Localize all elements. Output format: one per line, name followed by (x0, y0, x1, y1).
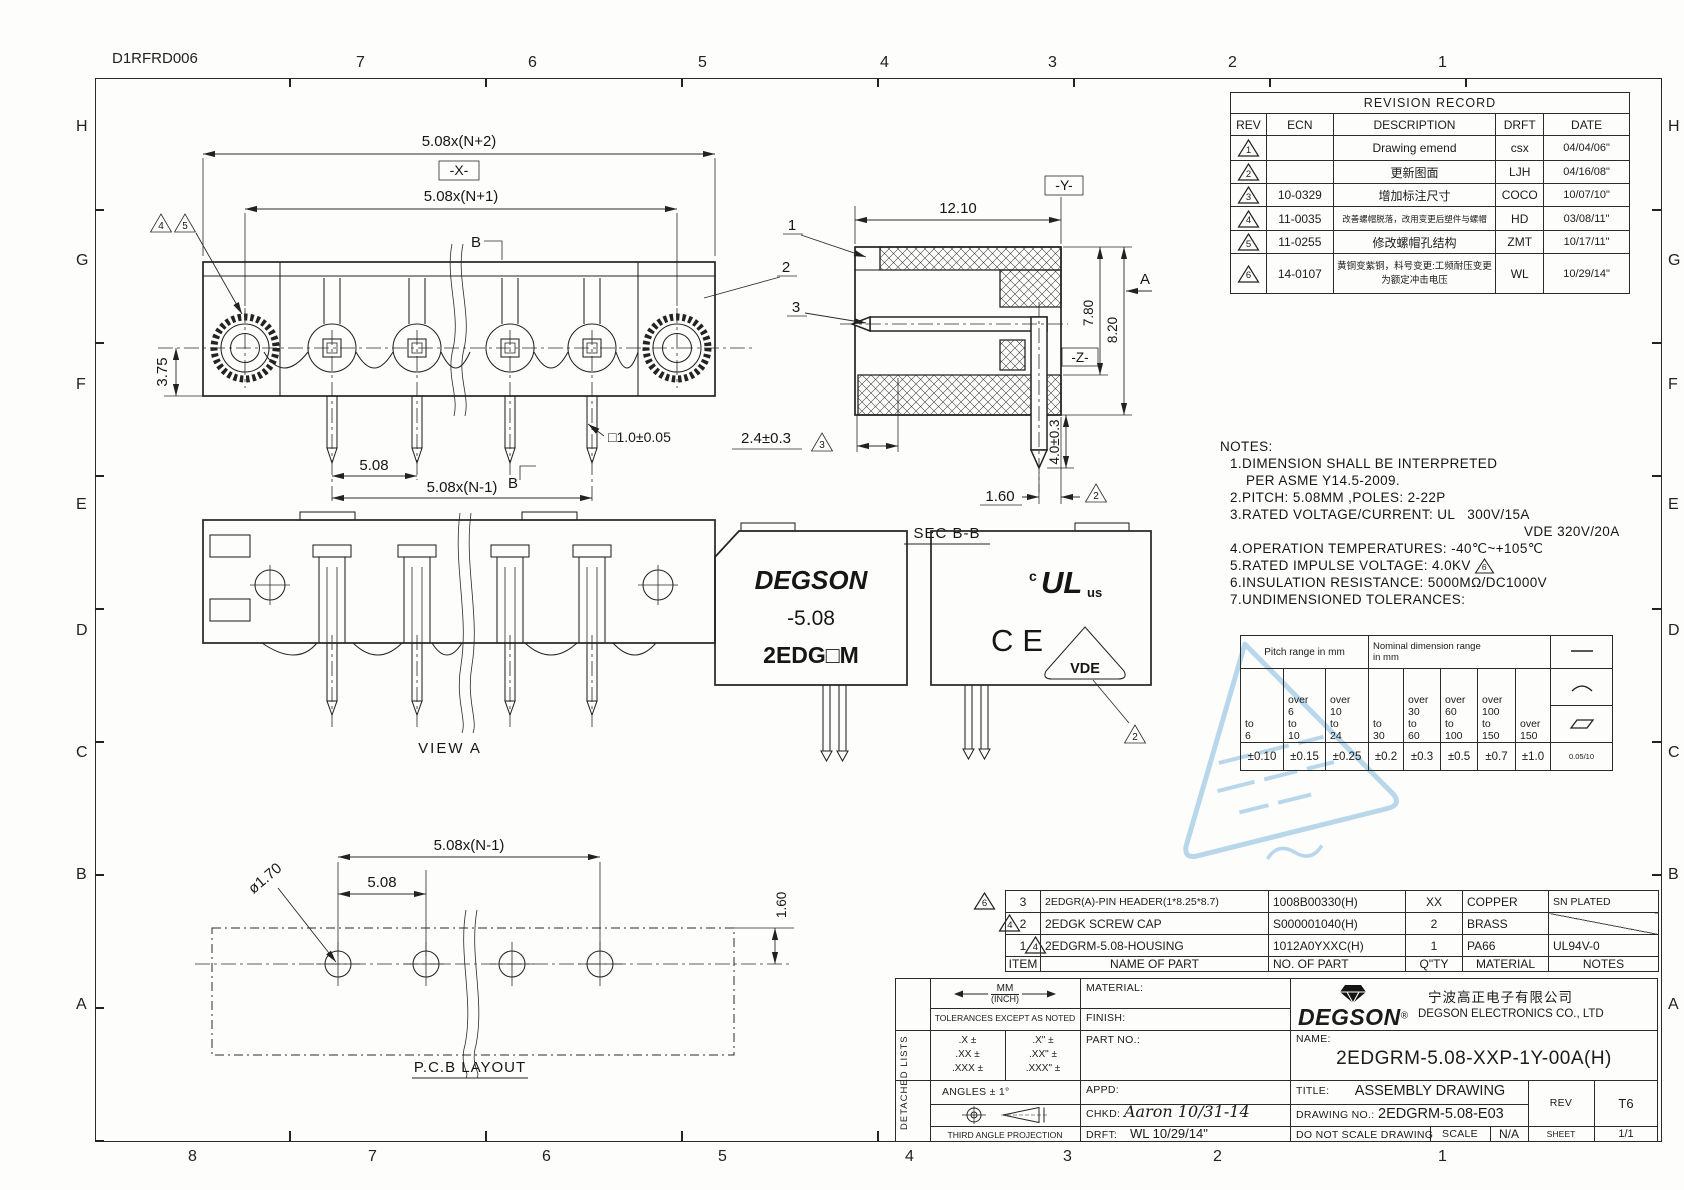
board-outline (212, 928, 734, 1055)
rev-label: REV (1528, 1080, 1594, 1126)
pitch-marking: -5.08 (787, 607, 835, 630)
range-cell: over 150 (1516, 669, 1551, 743)
cul-us-logo: c UL us (1029, 565, 1102, 600)
drft-label: DRFT: (1086, 1129, 1117, 1141)
note-line: PER ASME Y14.5-2009. (1246, 472, 1620, 489)
units-indicator: MM (INCH) (932, 982, 1078, 1006)
dim-height: 3.75 (154, 357, 171, 386)
col-description: DESCRIPTION (1333, 114, 1496, 136)
dim-overall: 5.08x(N+2) (422, 133, 497, 150)
tol-value: ±1.0 (1516, 743, 1551, 771)
drawing-no-value: 2EDGRM-5.08-E03 (1378, 1106, 1504, 1122)
svg-text:UL: UL (1041, 565, 1082, 600)
projection-cone-icon (1001, 1106, 1049, 1124)
dim-span: 5.08x(N-1) (434, 837, 505, 854)
revision-row: 2 更新图面 LJH04/16/08" (1231, 161, 1630, 184)
bom-row: 2 2EDGK SCREW CAP S000001040(H) 2 BRASS (1006, 913, 1659, 935)
drawing-no-label: DRAWING NO.: (1296, 1109, 1374, 1121)
range-cell: over 100 to 150 (1478, 669, 1516, 743)
scale-label: SCALE (1430, 1126, 1490, 1142)
break-line (474, 910, 479, 1078)
arrow-left-icon (952, 989, 988, 999)
range-cell: to 30 (1369, 669, 1404, 743)
col-drft: DRFT (1496, 114, 1544, 136)
brand-marking: DEGSON (755, 565, 869, 595)
pcb-label: P.C.B LAYOUT (414, 1059, 526, 1076)
revision-row: 1 Drawing emend csx04/04/06" (1231, 136, 1630, 161)
grid-col: 6 (542, 1148, 551, 1166)
grid-row: G (1668, 252, 1680, 270)
straightness-icon (1569, 646, 1595, 656)
grid-row: H (1668, 118, 1680, 136)
datum-z: -Z- (1071, 350, 1088, 365)
drawing-title: ASSEMBLY DRAWING (1340, 1083, 1520, 1099)
dim-h1: 7.80 (1081, 300, 1096, 326)
range-cell: to 6 (1241, 669, 1284, 743)
balloon-1: 1 (783, 217, 866, 257)
grid-col: 5 (718, 1148, 727, 1166)
name-label: NAME: (1296, 1033, 1331, 1045)
tol-value: ±0.5 (1441, 743, 1478, 771)
form-symbols-cell (1551, 669, 1613, 743)
svg-text:VDE: VDE (1070, 661, 1100, 677)
units-inch: (INCH) (991, 995, 1020, 1004)
svg-text:4: 4 (158, 221, 164, 232)
arc-icon (1569, 681, 1595, 693)
notes-block: NOTES: 1.DIMENSION SHALL BE INTERPRETED … (1220, 438, 1620, 608)
dim-pitch: 5.08 (359, 457, 388, 474)
svg-text:2: 2 (782, 259, 790, 276)
grid-col: 8 (188, 1148, 197, 1166)
grid-row: D (76, 622, 88, 640)
company-name-en: DEGSON ELECTRONICS CO., LTD (1418, 1008, 1604, 1020)
sheet-value: 1/1 (1594, 1126, 1658, 1142)
svg-text:1: 1 (788, 217, 796, 234)
grid-col: 3 (1063, 1148, 1072, 1166)
bom-rev-flag: 6 (974, 892, 995, 910)
rev-flag: 3 (1238, 186, 1259, 204)
dim-pin-length: 4.0±0.3 (1047, 420, 1062, 465)
grid-row: H (76, 118, 88, 136)
projection-label: THIRD ANGLE PROJECTION (930, 1130, 1080, 1140)
dim-span: 5.08x(N-1) (427, 479, 498, 496)
tol-value: ±0.10 (1241, 743, 1284, 771)
tol-value: ±0.25 (1326, 743, 1369, 771)
pcb-layout-view: 5.08x(N-1) 5.08 ø1.70 1.60 P.C.B LAYOUT (150, 770, 810, 1082)
grid-row: A (76, 996, 87, 1014)
col-ecn: ECN (1266, 114, 1333, 136)
break-line (461, 244, 466, 416)
material-label: MATERIAL: (1086, 982, 1143, 994)
grid-row: B (1668, 866, 1679, 884)
certification-view: c UL us CE VDE 2 (925, 515, 1160, 763)
zone-ticks-left (95, 78, 104, 1142)
grid-row: F (76, 376, 86, 394)
title-label: TITLE: (1296, 1085, 1329, 1097)
vde-logo: VDE (1045, 627, 1125, 679)
rev-flag: 4 (1238, 210, 1259, 228)
grid-row: F (1668, 376, 1678, 394)
chkd-signature: Aaron 10/31-14 (1124, 1102, 1250, 1121)
dim-front: 2.4±0.3 (741, 430, 791, 447)
rev-flag-2: 2 (1132, 732, 1138, 743)
range-cell: over 60 to 100 (1441, 669, 1478, 743)
tol-value: ±0.7 (1478, 743, 1516, 771)
arrow-right-icon (1022, 989, 1058, 999)
range-cell: over 6 to 10 (1284, 669, 1326, 743)
parallelogram-icon (1569, 718, 1595, 730)
chkd-label: CHKD: (1086, 1108, 1120, 1120)
part-name-value: 2EDGRM-5.08-XXP-1Y-00A(H) (1290, 1048, 1658, 1070)
section-mark-b-top: B (471, 234, 481, 251)
rev-flag: 6 (1475, 558, 1494, 574)
tol-value: ±0.2 (1369, 743, 1404, 771)
company-name-cn: 宁波高正电子有限公司 (1428, 986, 1573, 1006)
part-no-label: PART NO.: (1086, 1034, 1140, 1046)
grid-row: C (1668, 744, 1680, 762)
tolerance-mm-list: .X ±.XX ±.XXX ± (932, 1034, 1003, 1076)
scale-value: N/A (1490, 1126, 1528, 1142)
rev-flag-3: 3 (819, 440, 825, 451)
dim-width: 12.10 (939, 200, 977, 217)
grid-col: 3 (1048, 54, 1057, 72)
drawing-sheet: D1RFRD006 7 6 5 4 3 2 1 8 7 6 5 4 3 2 1 … (0, 0, 1684, 1190)
sheet-label: SHEET (1528, 1126, 1594, 1142)
break-line (463, 910, 468, 1078)
zone-ticks-right (1652, 78, 1661, 974)
note-line: 6.INSULATION RESISTANCE: 5000MΩ/DC1000V (1230, 574, 1620, 591)
angles-tolerance: ANGLES ± 1° (942, 1086, 1010, 1098)
contact-slots (313, 545, 611, 643)
projection-circle-icon (961, 1106, 987, 1124)
revision-row: 5 11-0255修改螺帽孔结构 ZMT10/17/11" (1231, 231, 1630, 254)
straightness-symbol-cell (1551, 636, 1613, 669)
datum-y: -Y- (1055, 177, 1073, 193)
grid-row: D (1668, 622, 1680, 640)
grid-col: 4 (880, 54, 889, 72)
bom-row: 3 2EDGR(A)-PIN HEADER(1*8.25*8.7) 1008B0… (1006, 891, 1659, 913)
detached-lists-label: DETACHED LISTS (899, 990, 910, 1130)
bom-row: 1 2EDGRM-5.08-HOUSING 1012A0YXXC(H) 1 PA… (1006, 935, 1659, 957)
dim-pin-offset: 1.60 (985, 488, 1014, 505)
break-line (469, 513, 474, 733)
svg-text:us: us (1087, 585, 1102, 600)
do-not-scale-label: DO NOT SCALE DRAWING (1296, 1129, 1433, 1141)
rev-flag: 5 (1238, 233, 1259, 251)
view-a-label: VIEW A (418, 740, 482, 757)
note-line: 1.DIMENSION SHALL BE INTERPRETED (1230, 455, 1620, 472)
revision-record-table: REVISION RECORD REV ECN DESCRIPTION DRFT… (1230, 92, 1630, 294)
range-cell: over 30 to 60 (1404, 669, 1441, 743)
section-mark-b-bottom: B (508, 475, 518, 492)
svg-text:3: 3 (792, 299, 800, 316)
note-line: 7.UNDIMENSIONED TOLERANCES: (1230, 591, 1620, 608)
rev-flag: 1 (1238, 139, 1259, 157)
grid-row: G (76, 252, 88, 270)
grid-col: 6 (528, 54, 537, 72)
brand-name: DEGSON (1298, 1004, 1401, 1030)
revision-row: 3 10-0329增加标注尺寸 COCO10/07/10" (1231, 184, 1630, 207)
balloon-2: 2 (704, 259, 797, 298)
grid-row: E (1668, 496, 1679, 514)
marking-view: DEGSON -5.08 2EDG□M (705, 515, 915, 763)
notes-title: NOTES: (1220, 438, 1620, 455)
finish-label: FINISH: (1086, 1012, 1125, 1024)
break-line (450, 244, 455, 416)
rev-flag: 6 (1238, 265, 1259, 283)
view-arrow-a: A (1140, 271, 1150, 288)
degson-logo: DEGSON® (1298, 984, 1408, 1031)
grid-col: 7 (368, 1148, 377, 1166)
note-line: 2.PITCH: 5.08MM ,POLES: 2-22P (1230, 489, 1620, 506)
dim-hole: ø1.70 (245, 860, 285, 898)
solder-pins (963, 685, 990, 759)
screw-hole-left (250, 565, 290, 605)
rev-flag-2: 2 (1093, 491, 1099, 502)
tolerance-table: Pitch range in mm Nominal dimension rang… (1240, 635, 1613, 771)
rev-flags-4-5: 4 5 (151, 214, 243, 314)
screw-hole-right (638, 565, 678, 605)
grid-row: A (1668, 996, 1679, 1014)
degson-diamond-icon (1340, 984, 1366, 1004)
ce-logo: CE (991, 623, 1052, 658)
grid-col: 5 (698, 54, 707, 72)
doc-code: D1RFRD006 (112, 50, 198, 67)
tol-value: ±0.15 (1284, 743, 1326, 771)
dim-edge: 1.60 (774, 892, 789, 918)
nominal-range-header: Nominal dimension range in mm (1369, 636, 1551, 669)
tolerance-inch-list: .X" ±.XX" ±.XXX" ± (1008, 1034, 1078, 1076)
pitch-range-header: Pitch range in mm (1241, 636, 1369, 669)
note-line: 4.OPERATION TEMPERATURES: -40℃~+105℃ (1230, 540, 1620, 557)
flatness-value: 0.05/10 (1551, 743, 1613, 771)
bom-table: 3 2EDGR(A)-PIN HEADER(1*8.25*8.7) 1008B0… (1005, 890, 1659, 972)
appd-label: APPD: (1086, 1084, 1119, 1096)
note-line: VDE 320V/20A (1524, 523, 1620, 540)
dim-pin-square: □1.0±0.05 (608, 429, 671, 445)
datum-x: -X- (450, 162, 469, 178)
dim-h2: 8.20 (1105, 317, 1120, 343)
range-cell: over 10 to 24 (1326, 669, 1369, 743)
third-angle-projection-symbol (946, 1106, 1064, 1124)
drft-value: WL 10/29/14" (1130, 1126, 1208, 1141)
series-marking: 2EDG□M (763, 642, 859, 668)
tolerances-note-label: TOLERANCES EXCEPT AS NOTED (932, 1013, 1078, 1023)
section-bb-view: -Y- 12.10 1 2 3 7.80 8.20 A -Z- 2.4±0.3 (700, 150, 1160, 550)
grid-col: 4 (905, 1148, 914, 1166)
tol-value: ±0.3 (1404, 743, 1441, 771)
revision-title: REVISION RECORD (1231, 93, 1630, 114)
dim-pitch: 5.08 (367, 874, 396, 891)
grid-row: C (76, 744, 88, 762)
svg-text:c: c (1029, 568, 1037, 584)
rev-flag: 2 (1238, 163, 1259, 181)
grid-col: 1 (1438, 54, 1447, 72)
bom-header-row: ITEM NAME OF PART NO. OF PART Q"TY MATER… (1006, 957, 1659, 972)
grid-col: 7 (356, 54, 365, 72)
rev-value: T6 (1594, 1080, 1658, 1126)
zone-ticks-bottom (95, 1131, 885, 1141)
top-view: 5.08x(N+2) -X- 5.08x(N+1) 4 5 B 3.75 5. (140, 84, 780, 504)
note-line: 3.RATED VOLTAGE/CURRENT: UL 300V/15A (1230, 506, 1620, 523)
revision-row: 6 14-0107黄铜变紫铜，料号变更:工频耐压变更为额定冲击电压 WL10/2… (1231, 254, 1630, 294)
registered-mark: ® (1401, 1011, 1408, 1022)
break-line (458, 513, 463, 733)
svg-text:5: 5 (182, 221, 188, 232)
solder-pins (821, 685, 848, 761)
grid-col: 2 (1228, 54, 1237, 72)
col-date: DATE (1544, 114, 1630, 136)
col-rev: REV (1231, 114, 1267, 136)
grid-row: E (76, 496, 87, 514)
note-line: 5.RATED IMPULSE VOLTAGE: 4.0KV 6 (1230, 557, 1620, 574)
grid-row: B (76, 866, 87, 884)
view-a: VIEW A (150, 505, 750, 765)
revision-row: 4 11-0035改善螺帽脱落，改用变更后塑件与螺帽 HD03/08/11" (1231, 207, 1630, 231)
grid-col: 1 (1438, 1148, 1447, 1166)
grid-col: 2 (1213, 1148, 1222, 1166)
dim-screws: 5.08x(N+1) (424, 188, 499, 205)
